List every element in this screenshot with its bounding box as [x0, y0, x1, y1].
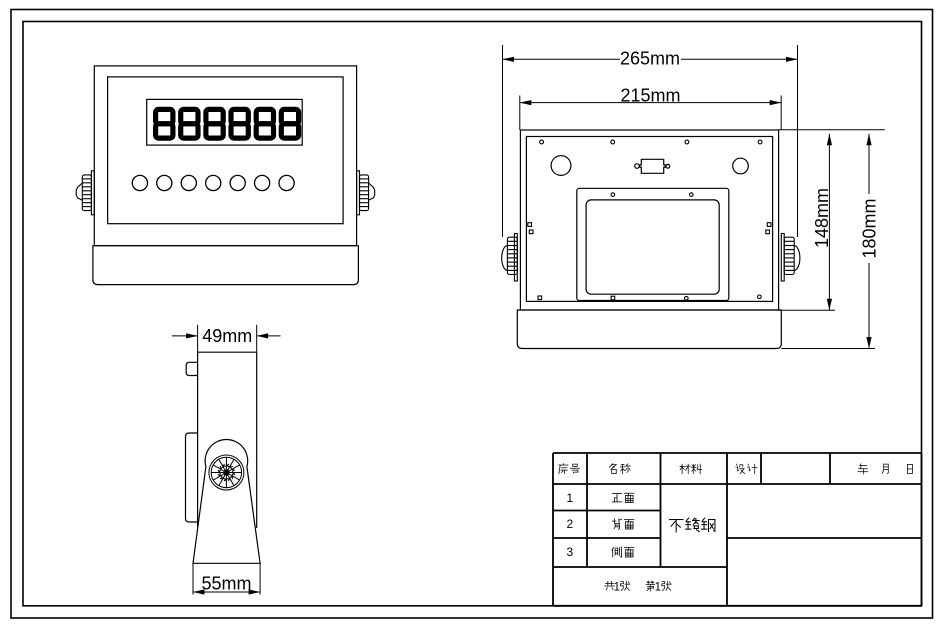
svg-text:265mm: 265mm [620, 49, 680, 69]
svg-text:215mm: 215mm [620, 86, 680, 106]
svg-text:49mm: 49mm [202, 326, 252, 346]
svg-text:55mm: 55mm [201, 574, 251, 594]
svg-text:3: 3 [566, 545, 573, 559]
svg-text:1: 1 [566, 491, 573, 505]
svg-text:180mm: 180mm [859, 198, 879, 258]
svg-text:1: 1 [614, 582, 620, 594]
svg-text:2: 2 [566, 517, 573, 531]
svg-text:148mm: 148mm [812, 188, 832, 248]
svg-text:1: 1 [655, 582, 661, 594]
